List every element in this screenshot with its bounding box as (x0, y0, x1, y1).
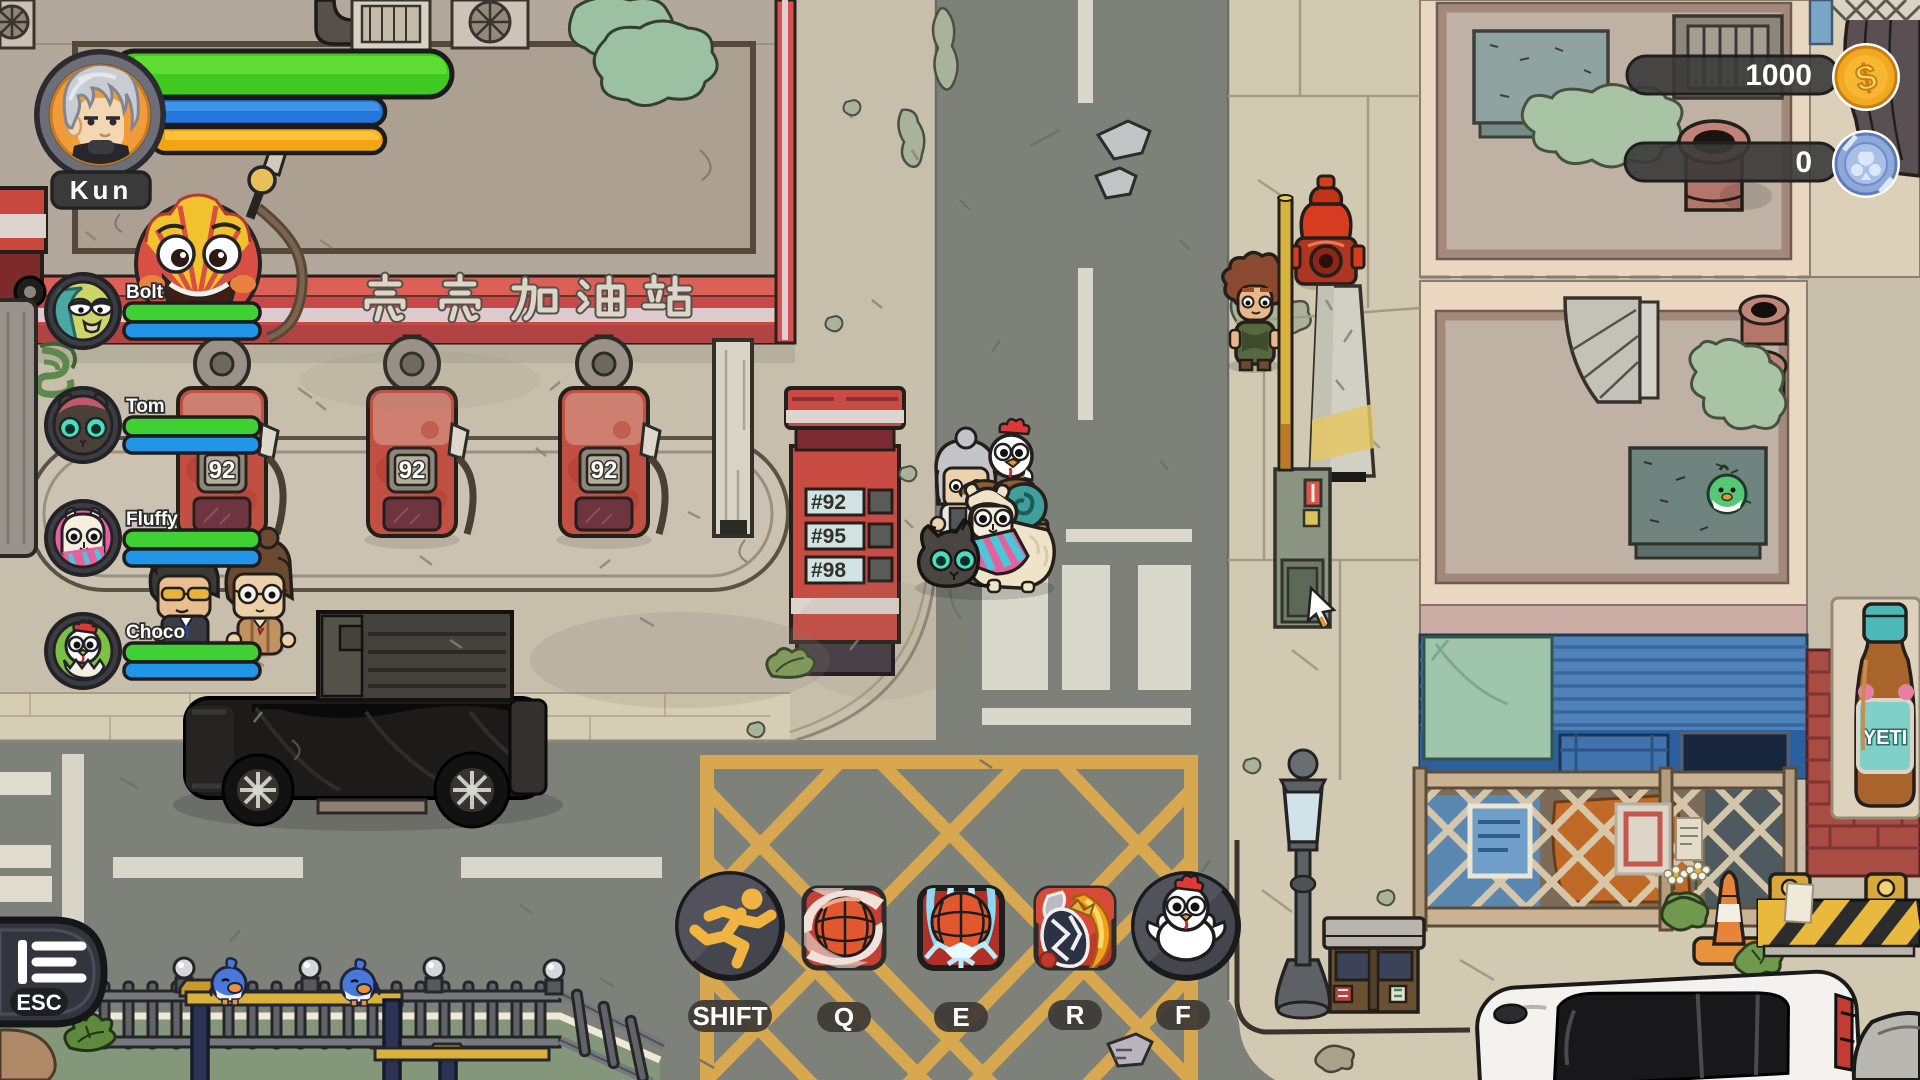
svg-text:SHIFT: SHIFT (692, 1001, 767, 1031)
svg-text:ESC: ESC (16, 990, 61, 1015)
svg-text:Tom: Tom (126, 396, 165, 417)
svg-text:0: 0 (1795, 146, 1812, 179)
svg-text:1000: 1000 (1745, 59, 1812, 92)
svg-text:E: E (952, 1002, 969, 1032)
svg-text:#92: #92 (811, 491, 846, 514)
svg-text:Bolt: Bolt (126, 282, 164, 303)
svg-text:YETI: YETI (1863, 727, 1907, 749)
svg-text:Fluffy: Fluffy (126, 509, 178, 530)
svg-text:92: 92 (209, 457, 236, 484)
svg-text:#95: #95 (811, 525, 846, 548)
svg-text:#98: #98 (811, 559, 846, 582)
svg-text:Q: Q (834, 1002, 854, 1032)
svg-text:Choco: Choco (126, 622, 185, 643)
svg-text:R: R (1066, 1000, 1085, 1030)
svg-text:Kun: Kun (70, 175, 133, 205)
svg-text:F: F (1175, 1000, 1191, 1030)
